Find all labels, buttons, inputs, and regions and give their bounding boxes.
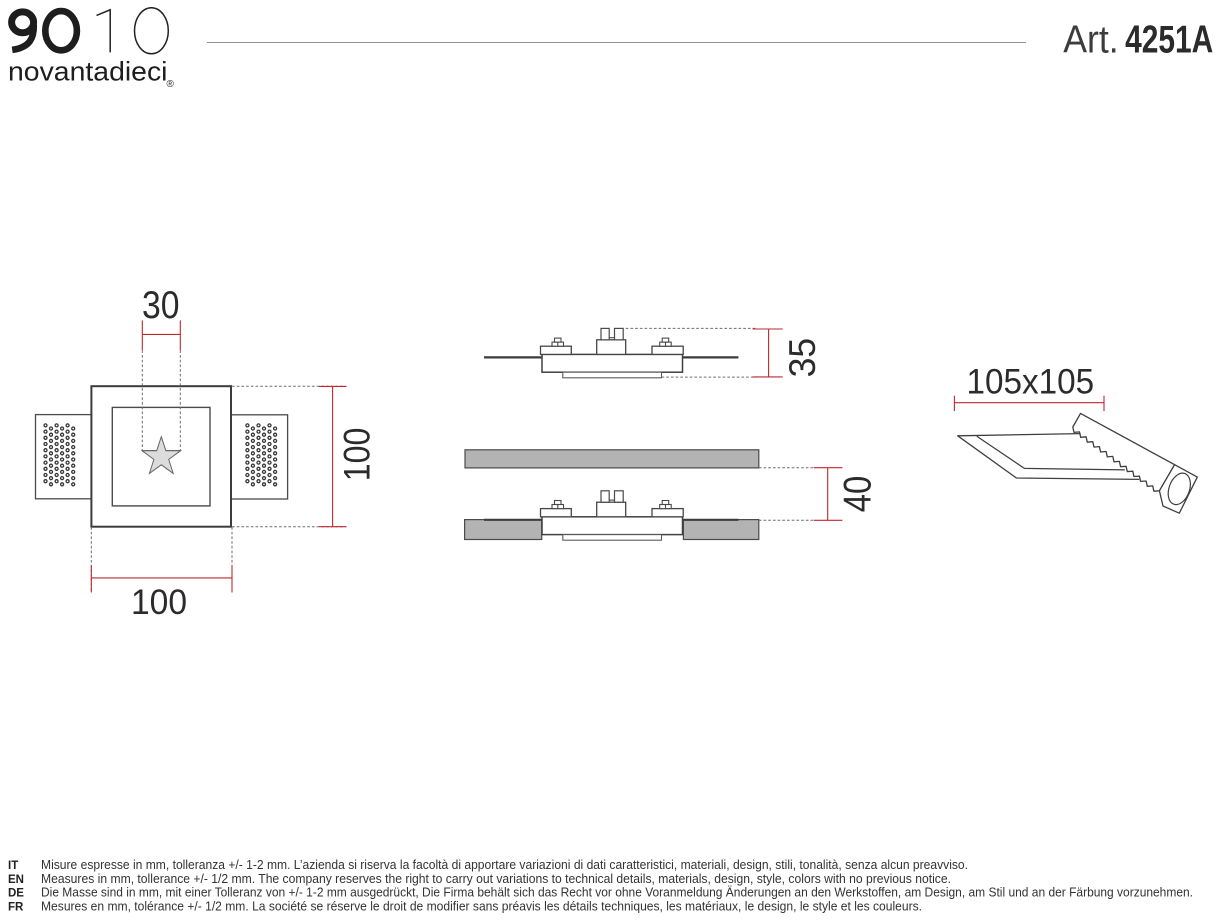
svg-text:40: 40	[836, 476, 879, 513]
svg-text:FR: FR	[8, 901, 24, 913]
svg-text:100: 100	[335, 428, 377, 482]
svg-text:EN: EN	[8, 874, 24, 886]
svg-text:100: 100	[131, 583, 187, 622]
svg-text:Measures in mm, tollerance +/-: Measures in mm, tollerance +/- 1/2 mm. T…	[41, 872, 951, 886]
svg-text:Misure espresse in mm, tollera: Misure espresse in mm, tolleranza +/- 1-…	[41, 858, 968, 872]
svg-text:novantadieci: novantadieci	[8, 57, 168, 87]
svg-text:105x105: 105x105	[967, 363, 1095, 402]
svg-text:Die Masse sind in mm, mit eine: Die Masse sind in mm, mit einer Tolleran…	[41, 886, 1193, 900]
svg-text:IT: IT	[8, 860, 18, 872]
svg-text:30: 30	[142, 284, 180, 327]
svg-text:Art.: Art.	[1063, 18, 1119, 61]
svg-text:35: 35	[782, 338, 823, 378]
svg-text:4251A: 4251A	[1125, 18, 1213, 61]
svg-text:Mesures en mm, tolérance +/- 1: Mesures en mm, tolérance +/- 1/2 mm. La …	[41, 899, 922, 913]
svg-text:DE: DE	[8, 888, 24, 900]
svg-text:®: ®	[167, 79, 175, 90]
